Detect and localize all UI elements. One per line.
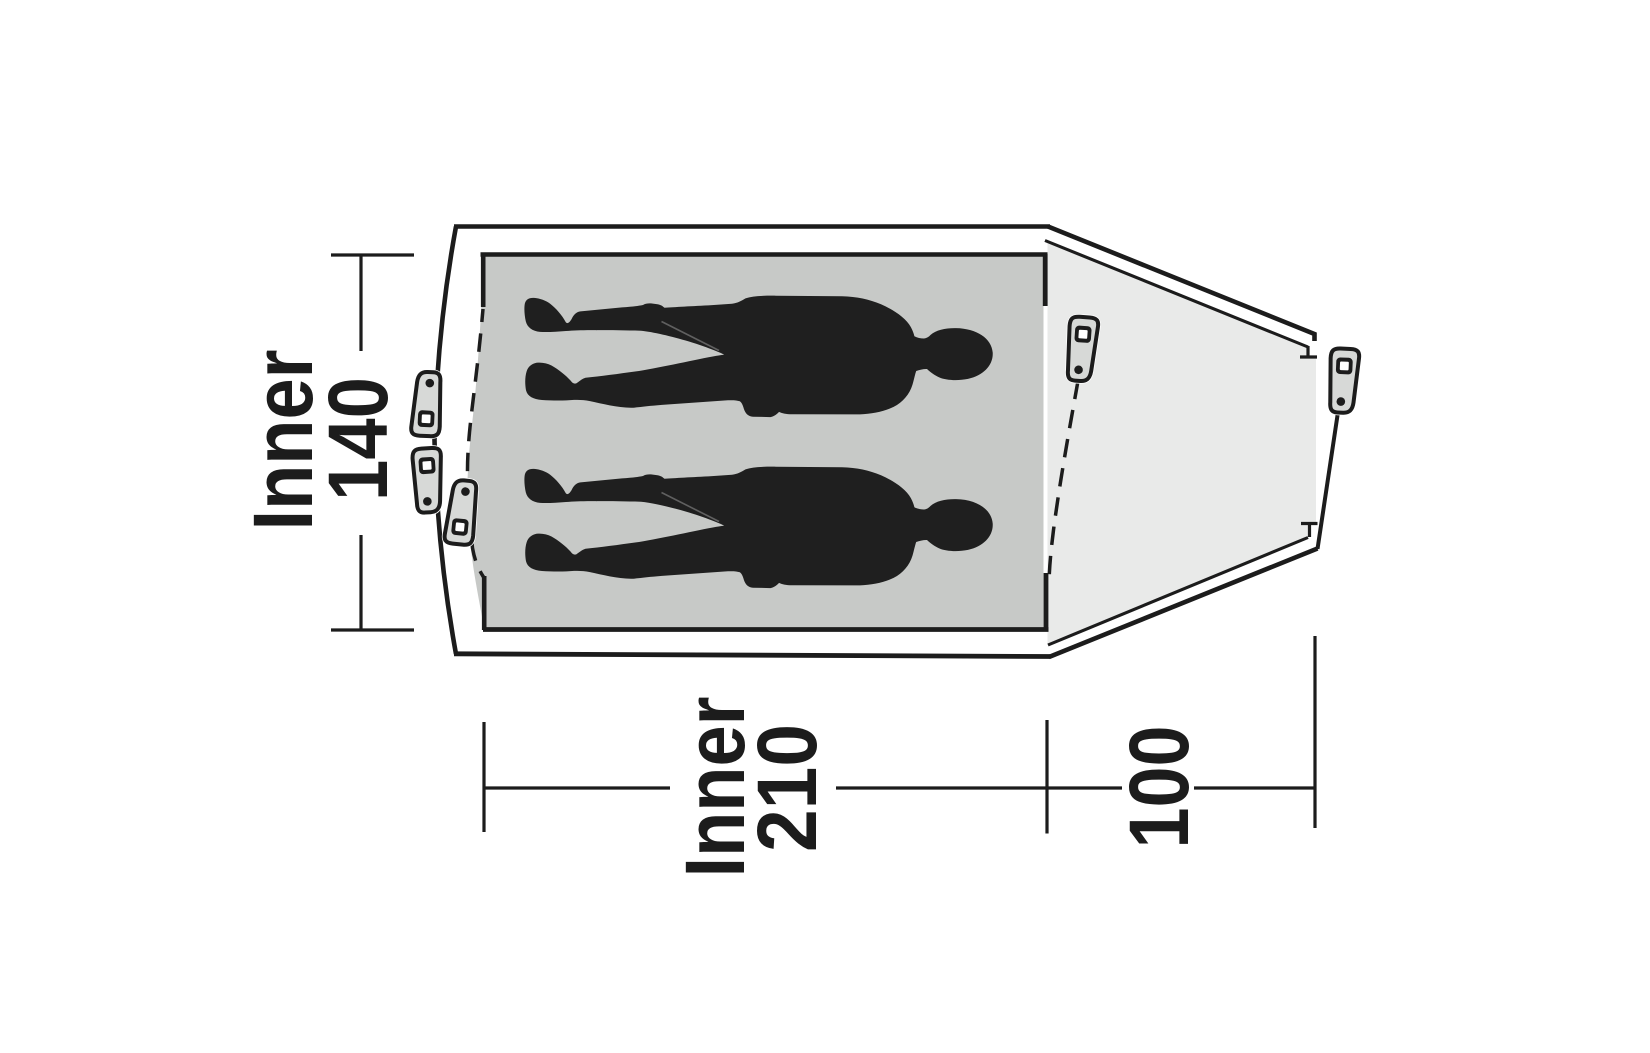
svg-text:100: 100 [1112, 726, 1206, 849]
svg-text:210: 210 [740, 724, 834, 852]
svg-text:140: 140 [311, 377, 405, 501]
